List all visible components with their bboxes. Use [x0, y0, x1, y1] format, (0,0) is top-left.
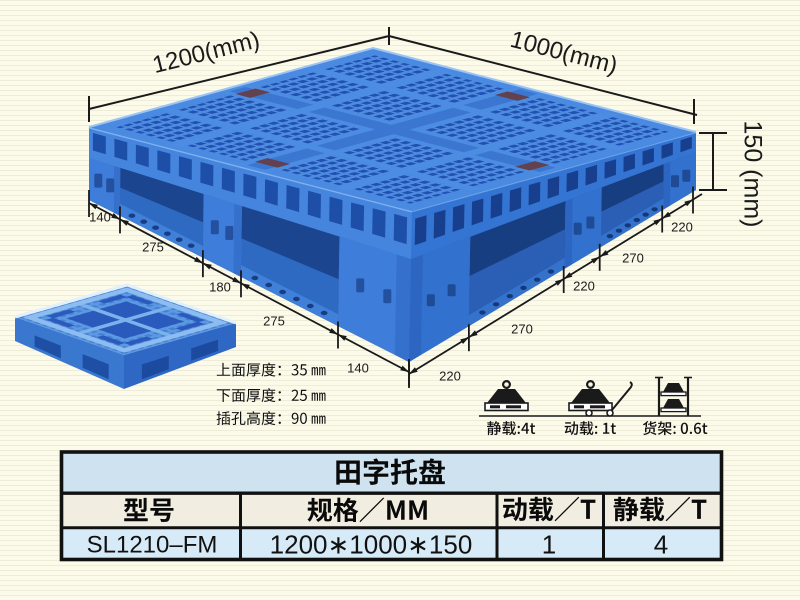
svg-text:275: 275 — [142, 240, 164, 255]
svg-text:1200∗1000∗150: 1200∗1000∗150 — [270, 530, 473, 560]
svg-text:SL1210–FM: SL1210–FM — [87, 532, 218, 559]
svg-text:220: 220 — [439, 369, 461, 384]
svg-text:150 (mm): 150 (mm) — [738, 121, 766, 228]
svg-text:180: 180 — [209, 280, 231, 295]
svg-text:140: 140 — [347, 361, 369, 376]
svg-text:1: 1 — [542, 530, 556, 560]
svg-text:275: 275 — [263, 314, 285, 329]
svg-text:220: 220 — [671, 220, 693, 235]
svg-text:270: 270 — [511, 322, 533, 337]
svg-text:270: 270 — [622, 251, 644, 266]
svg-text:140: 140 — [89, 210, 111, 225]
svg-text:4: 4 — [654, 530, 668, 560]
svg-text:220: 220 — [573, 279, 595, 294]
